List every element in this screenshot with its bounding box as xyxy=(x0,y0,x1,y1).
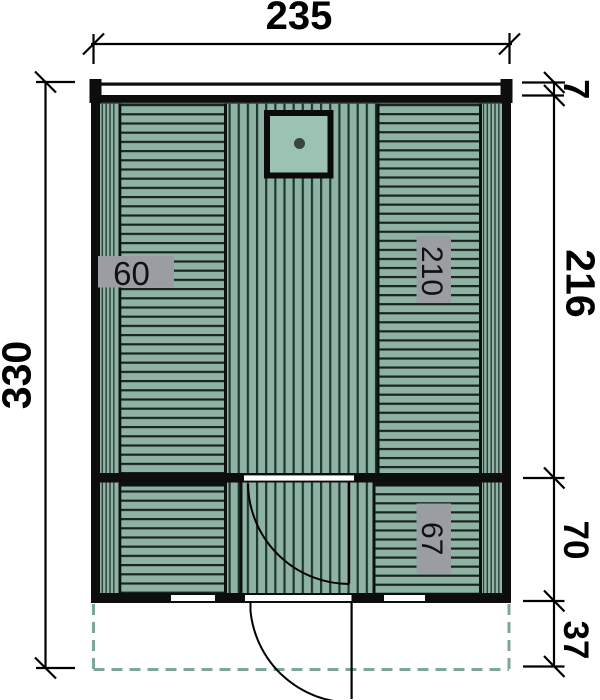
svg-text:210: 210 xyxy=(415,246,448,296)
svg-text:216: 216 xyxy=(558,249,600,317)
svg-text:37: 37 xyxy=(556,621,595,660)
svg-text:70: 70 xyxy=(556,521,595,560)
svg-text:330: 330 xyxy=(0,341,39,409)
svg-text:235: 235 xyxy=(266,0,333,38)
svg-text:7: 7 xyxy=(556,79,597,99)
svg-text:67: 67 xyxy=(415,522,448,555)
svg-text:60: 60 xyxy=(113,255,150,292)
